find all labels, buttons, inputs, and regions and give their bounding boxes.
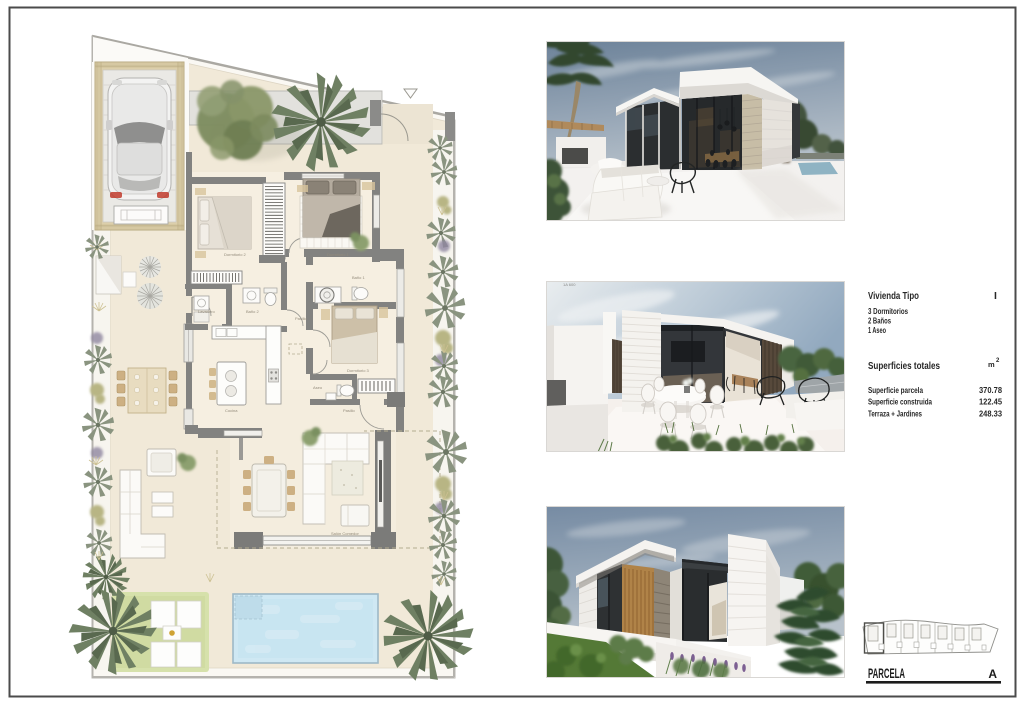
svg-text:Salón Comedor: Salón Comedor xyxy=(331,531,359,536)
svg-text:Terraza + Jardines: Terraza + Jardines xyxy=(868,409,922,418)
svg-text:3 Dormitorios: 3 Dormitorios xyxy=(868,307,908,316)
svg-text:Pasillo: Pasillo xyxy=(343,408,356,413)
svg-text:Vivienda Tipo: Vivienda Tipo xyxy=(868,290,919,302)
svg-text:m: m xyxy=(988,360,995,369)
svg-text:Superficies totales: Superficies totales xyxy=(868,360,940,372)
svg-text:1A 600: 1A 600 xyxy=(563,282,576,287)
svg-text:Dormitorio 2: Dormitorio 2 xyxy=(224,252,247,257)
svg-text:370.78: 370.78 xyxy=(979,386,1003,395)
svg-text:Dormitorio 3: Dormitorio 3 xyxy=(347,368,370,373)
svg-text:Lavadero: Lavadero xyxy=(198,309,215,314)
svg-text:I: I xyxy=(994,290,997,302)
svg-text:Baño 1: Baño 1 xyxy=(352,275,365,280)
svg-text:248.33: 248.33 xyxy=(979,409,1003,418)
svg-text:Superficie construida: Superficie construida xyxy=(868,398,932,407)
svg-text:PARCELA: PARCELA xyxy=(868,665,905,681)
svg-text:Baño 2: Baño 2 xyxy=(246,309,259,314)
svg-text:Superficie parcela: Superficie parcela xyxy=(868,386,923,395)
svg-text:122.45: 122.45 xyxy=(979,398,1003,407)
svg-text:A: A xyxy=(988,667,997,681)
svg-text:Aseo: Aseo xyxy=(313,385,323,390)
svg-text:Pasillo: Pasillo xyxy=(295,316,308,321)
svg-text:Cocina: Cocina xyxy=(225,408,238,413)
svg-text:Dormitorio 1: Dormitorio 1 xyxy=(327,252,350,257)
svg-text:2 Baños: 2 Baños xyxy=(868,317,891,326)
svg-text:1 Aseo: 1 Aseo xyxy=(868,326,886,335)
